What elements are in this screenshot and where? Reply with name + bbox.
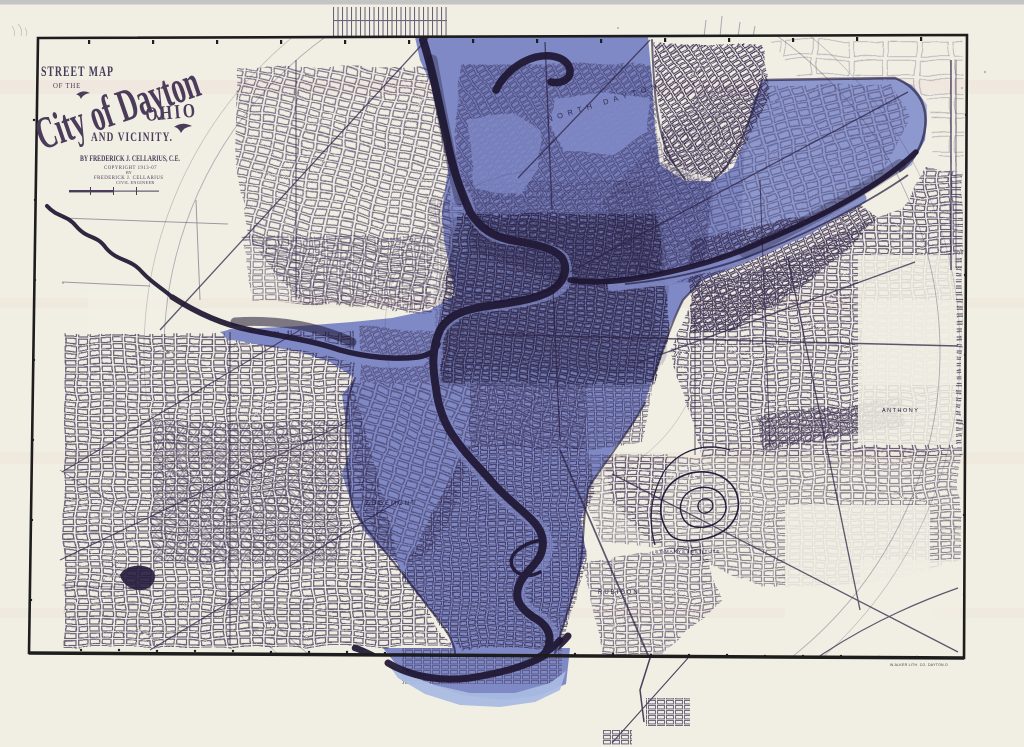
svg-text:BY: BY [126,170,132,175]
svg-text:BY FREDERICK J. CELLARIUS, C.E: BY FREDERICK J. CELLARIUS, C.E. [80,154,180,163]
svg-text:OHIO: OHIO [145,100,199,126]
svg-text:ANTHONY: ANTHONY [882,408,919,414]
svg-text:AND VICINITY.: AND VICINITY. [91,130,173,144]
svg-text:OF THE: OF THE [53,81,81,90]
svg-text:EDGEMONT: EDGEMONT [366,501,417,507]
svg-text:STREET MAP: STREET MAP [41,64,114,80]
svg-text:CIVIL ENGINEER: CIVIL ENGINEER [116,180,155,185]
svg-text:RUBICON: RUBICON [598,590,640,596]
svg-text:ST MARYS INSTITUTE: ST MARYS INSTITUTE [655,549,720,554]
svg-text:W.ALKER LITH. CO. DAYTON.O: W.ALKER LITH. CO. DAYTON.O [890,662,948,667]
